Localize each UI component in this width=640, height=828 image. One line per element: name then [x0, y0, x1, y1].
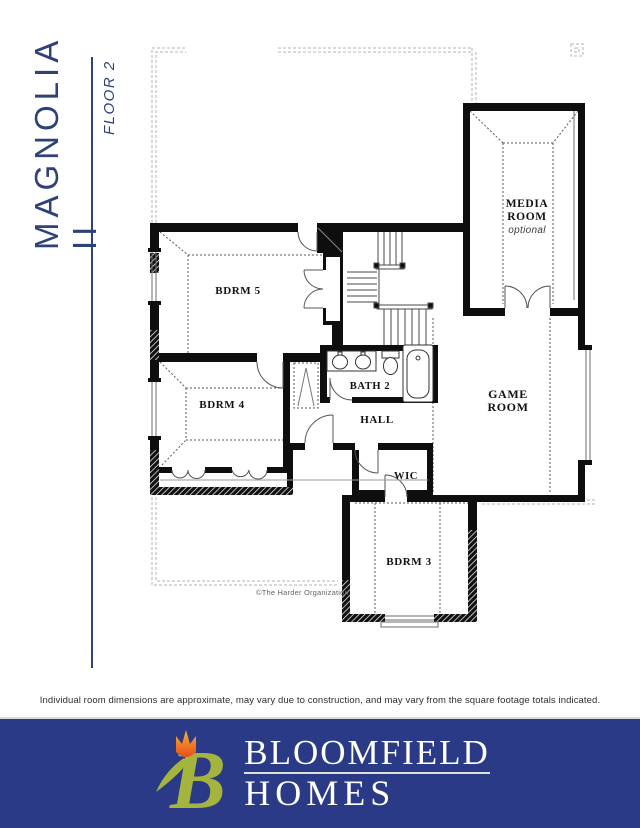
media-room-optional-note: optional	[467, 224, 587, 237]
stairs	[347, 232, 433, 345]
room-label-bdrm5: BDRM 5	[178, 285, 298, 298]
brand-name-top: BLOOMFIELD	[244, 735, 490, 774]
toilet-tank	[382, 351, 399, 358]
room-label-wic: WIC	[376, 470, 436, 483]
flyer-page: MAGNOLIA II FLOOR 2	[0, 0, 640, 828]
attic-chase-mark	[298, 368, 314, 406]
bloomfield-logo-mark: B	[150, 728, 238, 820]
walls	[148, 103, 592, 580]
room-label-hall: HALL	[337, 414, 417, 427]
brand-name-bottom: HOMES	[244, 774, 490, 812]
roof-outline-dashes	[152, 44, 596, 585]
room-label-bdrm4: BDRM 4	[162, 399, 282, 412]
copyright-note: ©The Harder Organization	[256, 588, 349, 597]
disclaimer-text: Individual room dimensions are approxima…	[0, 695, 640, 706]
sink-icon	[356, 355, 371, 369]
bath-fixtures	[327, 345, 433, 402]
room-label-bath2: BATH 2	[330, 380, 410, 393]
bloomfield-logo: B BLOOMFIELD HOMES	[150, 728, 490, 820]
toilet-icon	[384, 358, 398, 375]
brand-banner: B BLOOMFIELD HOMES	[0, 717, 640, 828]
sink-icon	[333, 355, 348, 369]
room-label-game-room: GAME ROOM	[448, 388, 568, 414]
room-label-media-room: MEDIA ROOM optional	[467, 198, 587, 237]
room-label-bdrm3: BDRM 3	[349, 556, 469, 569]
brand-wordmark: BLOOMFIELD HOMES	[244, 735, 490, 812]
